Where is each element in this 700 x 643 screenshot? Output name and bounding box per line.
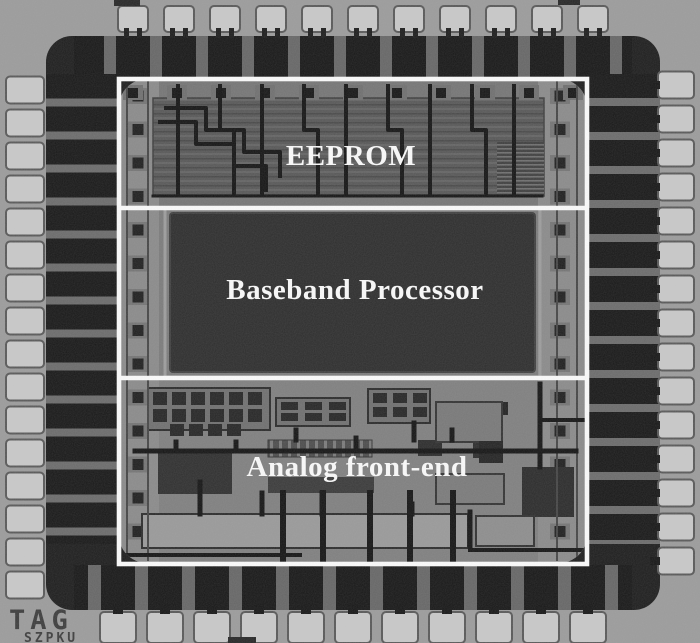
die-micrograph-figure: EEPROM Baseband Processor Analog front-e… bbox=[0, 0, 700, 643]
film-grain bbox=[0, 0, 700, 643]
die-photo: EEPROM Baseband Processor Analog front-e… bbox=[0, 0, 700, 643]
